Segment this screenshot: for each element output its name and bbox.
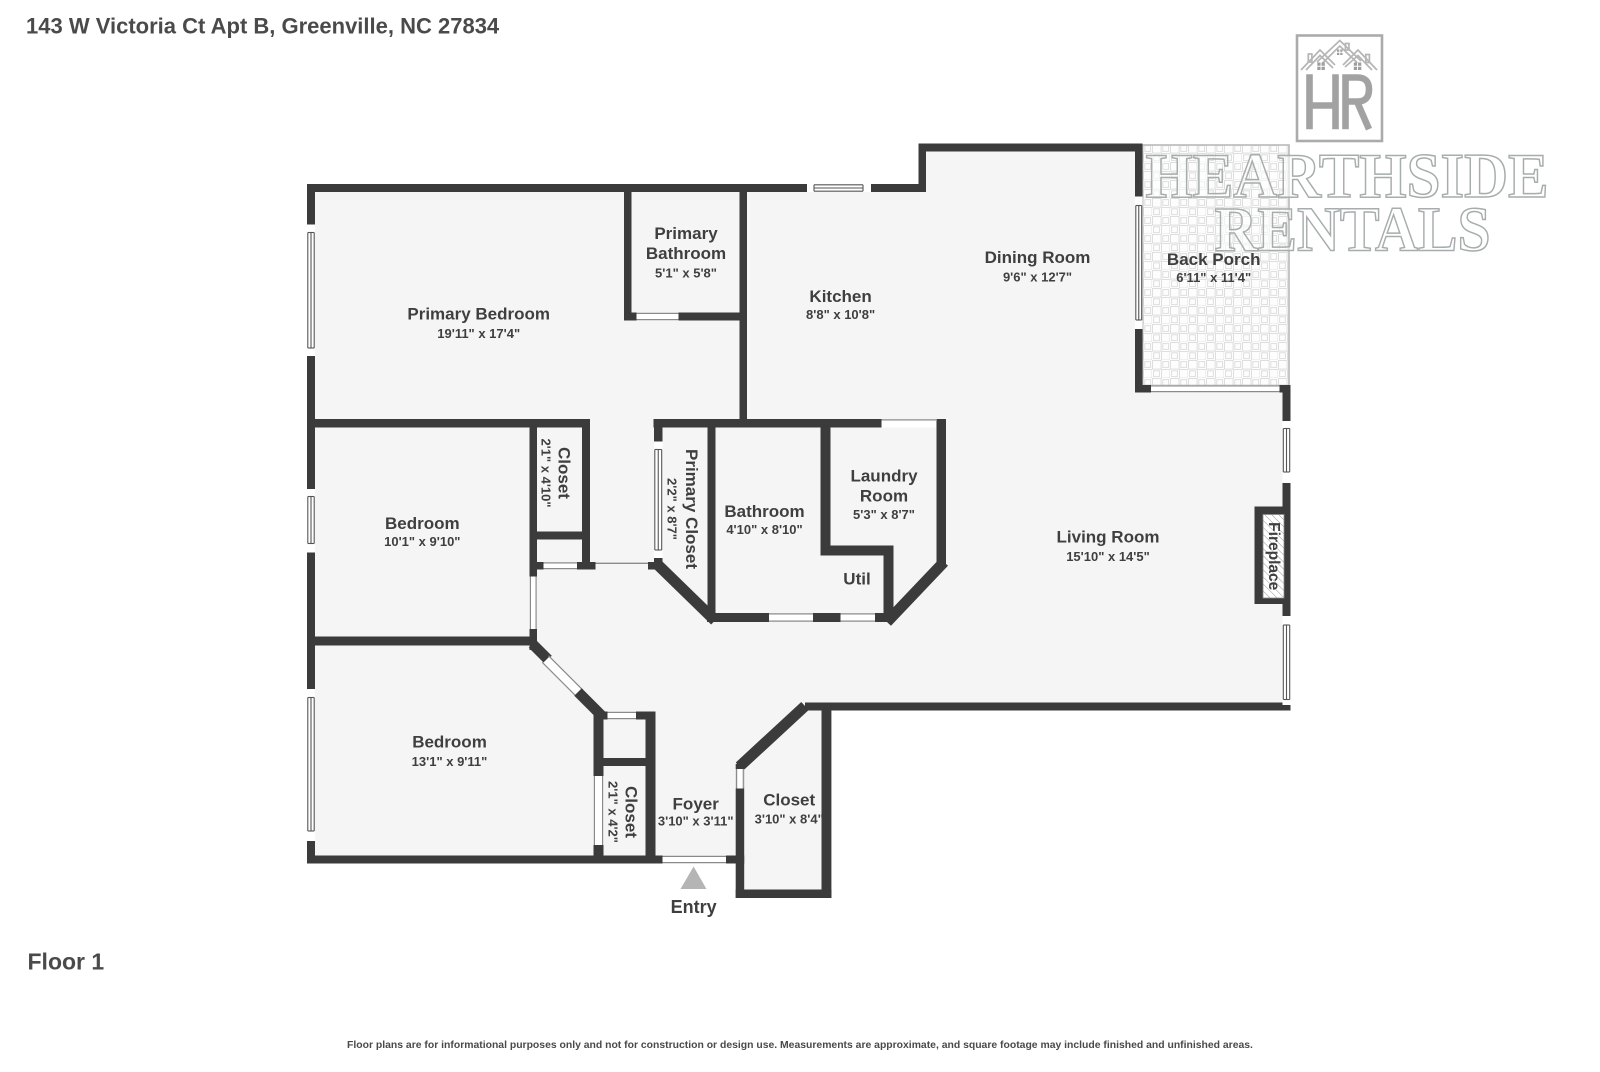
svg-text:Living Room: Living Room [1057, 528, 1160, 547]
svg-text:143 W Victoria Ct Apt B, Green: 143 W Victoria Ct Apt B, Greenville, NC … [26, 14, 500, 39]
svg-text:5'3" x 8'7": 5'3" x 8'7" [853, 507, 915, 522]
svg-text:Floor plans are for informatio: Floor plans are for informational purpos… [347, 1040, 1253, 1051]
svg-text:10'1" x 9'10": 10'1" x 9'10" [384, 534, 460, 549]
svg-text:6'11" x 11'4": 6'11" x 11'4" [1176, 270, 1251, 285]
svg-text:9'6" x 12'7": 9'6" x 12'7" [1003, 270, 1072, 285]
svg-text:Bedroom: Bedroom [412, 733, 487, 752]
svg-text:Closet: Closet [763, 791, 815, 810]
svg-text:2'2" x 8'7": 2'2" x 8'7" [665, 478, 680, 540]
svg-text:Bedroom: Bedroom [385, 514, 460, 533]
svg-text:Entry: Entry [671, 897, 717, 917]
svg-text:8'8" x 10'8": 8'8" x 10'8" [806, 307, 875, 322]
svg-text:13'1" x 9'11": 13'1" x 9'11" [412, 754, 488, 769]
svg-text:Closet: Closet [622, 786, 641, 838]
svg-text:Laundry: Laundry [850, 467, 918, 486]
svg-text:Closet: Closet [555, 447, 574, 499]
svg-text:Dining Room: Dining Room [985, 248, 1091, 267]
svg-text:3'10" x 3'11": 3'10" x 3'11" [658, 814, 734, 829]
svg-text:Kitchen: Kitchen [809, 287, 871, 306]
svg-text:Primary Bedroom: Primary Bedroom [407, 305, 550, 324]
svg-text:Bathroom: Bathroom [724, 502, 804, 521]
svg-text:Floor 1: Floor 1 [28, 949, 105, 975]
svg-text:Primary: Primary [654, 224, 718, 243]
svg-text:4'10" x 8'10": 4'10" x 8'10" [726, 522, 802, 537]
svg-text:Util: Util [843, 570, 870, 589]
svg-text:Primary Closet: Primary Closet [682, 449, 701, 569]
svg-text:2'1" x 4'10": 2'1" x 4'10" [539, 438, 554, 507]
svg-text:15'10" x 14'5": 15'10" x 14'5" [1066, 549, 1150, 564]
svg-text:5'1" x 5'8": 5'1" x 5'8" [655, 266, 717, 281]
svg-text:Fireplace: Fireplace [1265, 522, 1282, 590]
svg-text:RENTALS: RENTALS [1215, 195, 1491, 265]
svg-text:3'10" x 8'4": 3'10" x 8'4" [755, 812, 824, 827]
svg-text:Room: Room [860, 487, 908, 506]
svg-text:2'1" x 4'2": 2'1" x 4'2" [606, 781, 621, 843]
svg-text:Foyer: Foyer [673, 795, 720, 814]
svg-text:Bathroom: Bathroom [646, 244, 726, 263]
svg-text:19'11" x 17'4": 19'11" x 17'4" [437, 326, 520, 341]
